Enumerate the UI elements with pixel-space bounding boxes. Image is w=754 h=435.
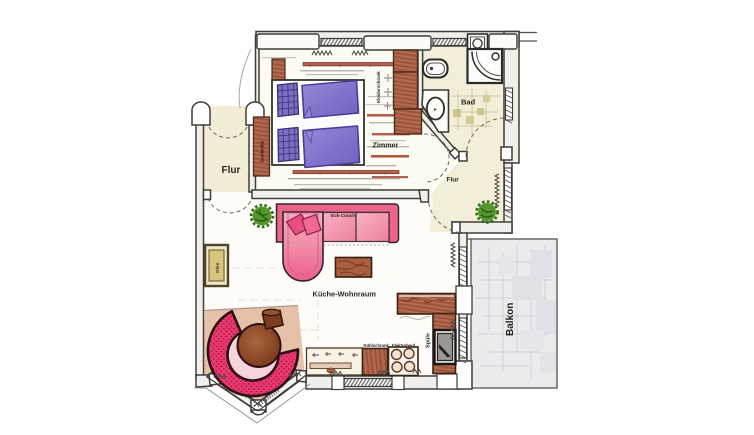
svg-text:Balkon: Balkon (505, 303, 516, 336)
svg-text:Flur: Flur (447, 177, 460, 184)
svg-text:Garderobe: Garderobe (260, 140, 265, 162)
svg-text:Küche-Wohnraum: Küche-Wohnraum (313, 290, 377, 299)
svg-text:Eck-Couch: Eck-Couch (331, 213, 355, 218)
svg-text:Ofen: Ofen (215, 262, 220, 273)
svg-text:Elektroherd: Elektroherd (392, 343, 416, 348)
svg-text:Kleiderschrank: Kleiderschrank (376, 71, 381, 103)
svg-text:Spüle: Spüle (426, 333, 432, 348)
svg-text:Flur: Flur (222, 165, 241, 176)
svg-text:Bad: Bad (461, 98, 476, 107)
svg-text:Kühlschrank: Kühlschrank (364, 343, 390, 348)
svg-text:Zimmer: Zimmer (373, 141, 399, 150)
